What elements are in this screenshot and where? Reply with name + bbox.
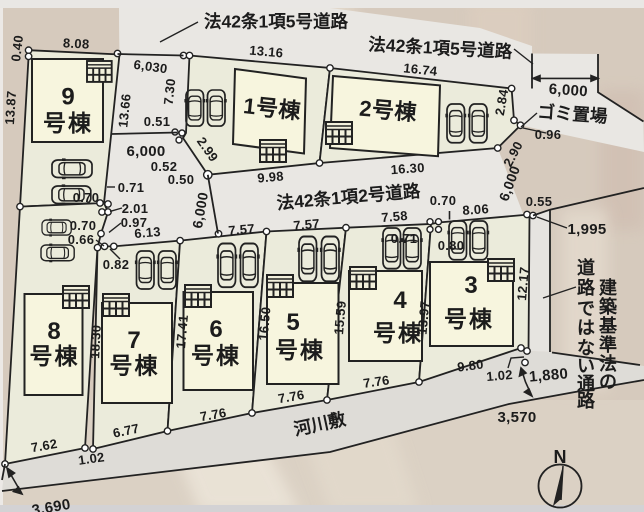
svg-text:9.80: 9.80	[456, 356, 484, 374]
svg-text:4: 4	[393, 287, 407, 314]
svg-text:7.58: 7.58	[381, 208, 409, 225]
svg-text:0.96: 0.96	[535, 127, 562, 142]
svg-text:8.06: 8.06	[462, 201, 489, 218]
svg-text:3: 3	[464, 272, 477, 299]
svg-text:準: 準	[599, 334, 617, 355]
svg-text:2.01: 2.01	[122, 201, 149, 216]
svg-text:13.97: 13.97	[415, 300, 433, 335]
svg-text:道: 道	[577, 257, 595, 278]
svg-text:6,000: 6,000	[126, 143, 165, 160]
svg-text:13.16: 13.16	[249, 43, 284, 61]
svg-text:な: な	[577, 338, 595, 358]
svg-text:18.30: 18.30	[87, 324, 104, 359]
svg-text:号棟: 号棟	[43, 110, 93, 136]
svg-text:6: 6	[209, 316, 222, 343]
svg-text:15.59: 15.59	[331, 300, 349, 335]
svg-text:8: 8	[47, 318, 60, 345]
svg-text:号棟: 号棟	[110, 353, 160, 379]
svg-text:0.70: 0.70	[430, 193, 457, 208]
svg-text:で: で	[577, 299, 595, 319]
svg-text:7: 7	[127, 327, 140, 354]
svg-text:6.13: 6.13	[134, 224, 162, 241]
svg-text:号棟: 号棟	[191, 343, 241, 369]
svg-text:路: 路	[577, 277, 596, 298]
svg-text:法: 法	[599, 353, 617, 374]
svg-text:い: い	[577, 356, 595, 376]
svg-text:7.57: 7.57	[293, 216, 321, 233]
svg-text:6,000: 6,000	[548, 81, 588, 101]
svg-text:16.30: 16.30	[390, 160, 425, 177]
svg-text:8.08: 8.08	[63, 35, 90, 51]
svg-text:9: 9	[61, 84, 74, 111]
svg-text:1.02: 1.02	[486, 367, 514, 384]
svg-text:13.87: 13.87	[2, 90, 19, 125]
svg-text:9.98: 9.98	[257, 168, 285, 185]
svg-text:16.50: 16.50	[256, 306, 274, 341]
svg-text:号棟: 号棟	[30, 343, 80, 369]
svg-text:築: 築	[598, 296, 618, 317]
svg-text:0.82: 0.82	[103, 257, 130, 272]
svg-text:0.40: 0.40	[8, 34, 26, 62]
svg-text:路: 路	[577, 390, 596, 411]
svg-text:0.66: 0.66	[68, 232, 95, 247]
svg-text:0.71: 0.71	[391, 231, 418, 246]
svg-text:の: の	[599, 372, 617, 392]
svg-text:0.70: 0.70	[73, 190, 100, 205]
svg-text:号棟: 号棟	[444, 306, 494, 332]
svg-text:12.17: 12.17	[514, 266, 532, 301]
svg-text:7.30: 7.30	[161, 78, 179, 106]
svg-text:法42条1項5号道路: 法42条1項5号道路	[204, 12, 348, 32]
svg-text:号棟: 号棟	[275, 337, 325, 363]
svg-text:0.51: 0.51	[144, 114, 171, 129]
svg-text:17.41: 17.41	[173, 314, 191, 349]
svg-text:0.71: 0.71	[118, 180, 145, 195]
svg-text:1,995: 1,995	[567, 221, 606, 238]
svg-text:1,880: 1,880	[528, 365, 568, 385]
svg-text:3,570: 3,570	[497, 409, 536, 426]
svg-text:基: 基	[598, 315, 618, 336]
svg-text:0.50: 0.50	[168, 172, 195, 187]
svg-text:2号棟: 2号棟	[358, 96, 418, 126]
svg-text:5: 5	[286, 309, 299, 336]
svg-text:は: は	[577, 318, 595, 338]
svg-text:0.70: 0.70	[70, 218, 97, 233]
svg-text:N: N	[554, 447, 567, 467]
svg-text:建: 建	[599, 277, 617, 298]
svg-text:7.57: 7.57	[228, 221, 256, 238]
svg-text:0.80: 0.80	[438, 238, 465, 253]
svg-text:0.55: 0.55	[526, 194, 553, 209]
